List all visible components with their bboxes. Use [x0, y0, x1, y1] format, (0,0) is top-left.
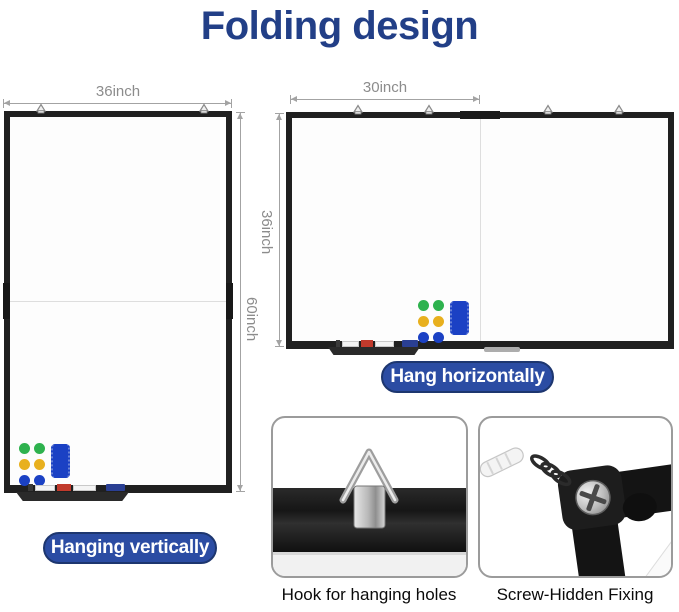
screw-detail-card	[478, 416, 673, 578]
horizontal-board-width-label: 30inch	[290, 79, 480, 96]
fold-line	[480, 118, 481, 341]
horizontal-board-width-dimension-line	[290, 95, 480, 104]
magnet-green	[418, 300, 429, 311]
arrow-down-icon	[276, 340, 282, 346]
marker-body	[342, 341, 359, 347]
eraser-small	[106, 484, 125, 491]
arrow-up-icon	[276, 114, 282, 120]
screw-detail-illustration	[480, 418, 671, 576]
hang-horizontally-badge: Hang horizontally	[381, 361, 554, 393]
hanging-hook-icon	[352, 104, 364, 115]
fold-hinge-tab	[484, 347, 520, 352]
hanging-hook-icon	[613, 104, 625, 115]
arrow-left-icon	[291, 96, 297, 102]
arrow-up-icon	[237, 113, 243, 119]
dimension-line	[240, 112, 241, 492]
marker-body	[73, 485, 96, 491]
dimension-tick	[231, 99, 232, 108]
arrow-right-icon	[225, 100, 231, 106]
marker-cap-red	[361, 340, 373, 347]
eraser-small	[402, 340, 418, 347]
whiteboard-eraser	[51, 444, 70, 478]
markers-row	[336, 340, 418, 347]
hanging-hook-icon	[423, 104, 435, 115]
magnet-yellow	[418, 316, 429, 327]
horizontal-board-height-dimension-line	[275, 113, 284, 347]
dimension-line	[290, 99, 480, 100]
magnet-set	[418, 300, 469, 343]
arrow-right-icon	[473, 96, 479, 102]
marker-tray	[16, 492, 129, 501]
marker-cap	[336, 340, 340, 347]
marker-tray	[328, 347, 420, 355]
marker-body	[35, 485, 55, 491]
magnet-green	[34, 443, 45, 454]
magnet-yellow	[19, 459, 30, 470]
fold-hinge	[3, 283, 10, 319]
markers-row	[28, 484, 125, 491]
whiteboard-eraser	[450, 301, 469, 335]
arrow-down-icon	[237, 485, 243, 491]
vertical-board-width-label: 36inch	[0, 83, 236, 100]
horizontal-board-height-label: 36inch	[258, 203, 275, 261]
dimension-line	[279, 113, 280, 347]
screw-detail-caption: Screw-Hidden Fixing	[455, 585, 679, 605]
magnets-grid	[19, 443, 45, 486]
dimension-tick	[236, 491, 245, 492]
arrow-left-icon	[4, 100, 10, 106]
vertical-board-height-label: 60inch	[243, 291, 260, 347]
magnet-blue	[418, 332, 429, 343]
hanging-hook-icon	[542, 104, 554, 115]
horizontal-whiteboard	[286, 112, 674, 349]
hanging-hook-icon	[198, 103, 210, 114]
magnet-yellow	[433, 316, 444, 327]
hanging-vertically-badge: Hanging vertically	[43, 532, 217, 564]
fold-line	[10, 301, 226, 302]
magnet-green	[19, 443, 30, 454]
vertical-whiteboard	[4, 111, 232, 493]
magnet-blue	[433, 332, 444, 343]
product-image: Folding design 36inch	[0, 0, 679, 612]
dimension-tick	[479, 95, 480, 104]
hook-detail-illustration	[273, 418, 466, 576]
fold-hinge	[226, 283, 233, 319]
hook-detail-card	[271, 416, 468, 578]
magnet-green	[433, 300, 444, 311]
page-title: Folding design	[0, 0, 679, 52]
marker-cap	[28, 484, 33, 491]
marker-cap-red	[57, 484, 71, 491]
hanging-hook-icon	[35, 103, 47, 114]
marker-body	[375, 341, 394, 347]
dimension-tick	[275, 346, 284, 347]
fold-hinge	[460, 111, 500, 119]
hook-detail-caption: Hook for hanging holes	[249, 585, 489, 605]
magnets-grid	[418, 300, 444, 343]
magnet-set	[19, 443, 70, 486]
magnet-yellow	[34, 459, 45, 470]
